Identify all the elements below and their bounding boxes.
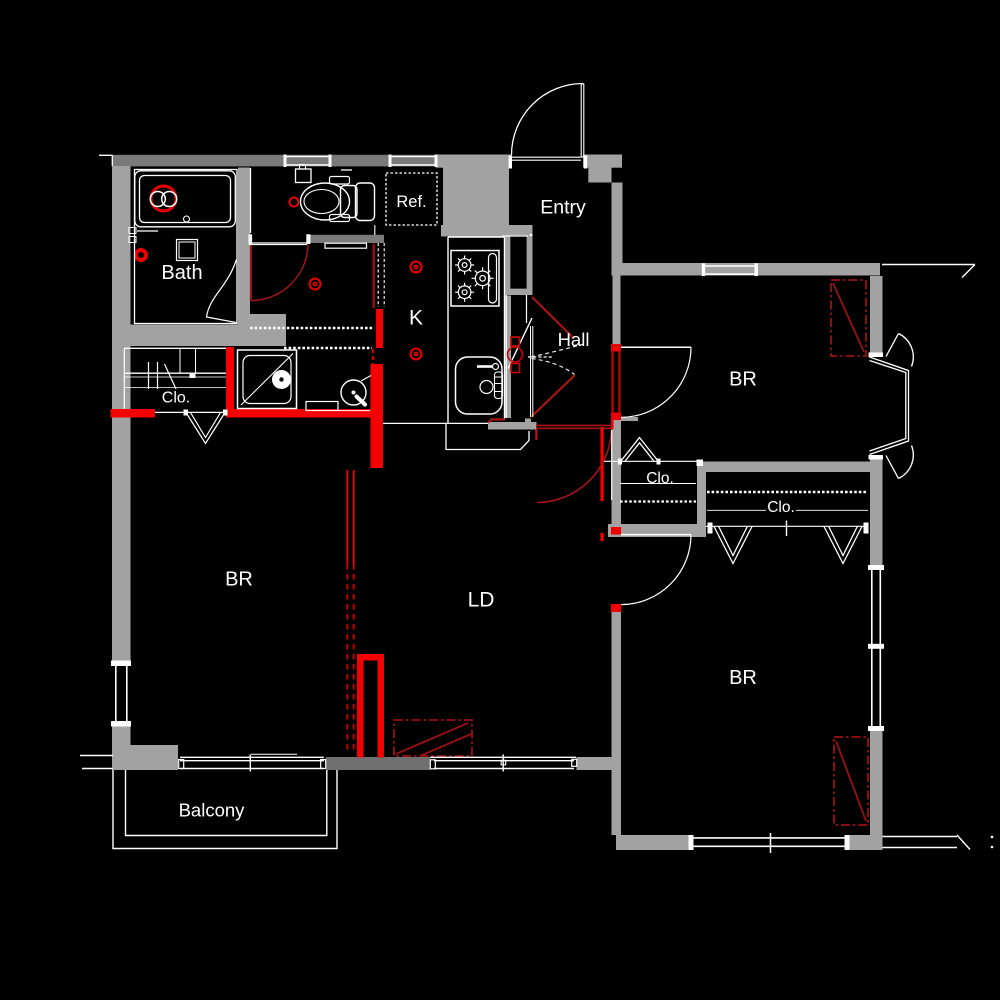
svg-text:BR: BR <box>225 569 253 591</box>
svg-text:BR: BR <box>729 369 757 391</box>
svg-text:Bath: Bath <box>161 262 202 284</box>
svg-text:Clo.: Clo. <box>646 470 674 487</box>
svg-text:LD: LD <box>468 589 495 612</box>
svg-text:Hall: Hall <box>558 329 590 350</box>
svg-text:Ref.: Ref. <box>396 193 426 211</box>
svg-text:Clo.: Clo. <box>767 499 795 516</box>
svg-text:Entry: Entry <box>540 197 586 219</box>
svg-text:Clo.: Clo. <box>162 390 190 407</box>
svg-text:Balcony: Balcony <box>179 800 246 821</box>
svg-text:BR: BR <box>729 667 757 689</box>
svg-text:K: K <box>409 307 423 330</box>
